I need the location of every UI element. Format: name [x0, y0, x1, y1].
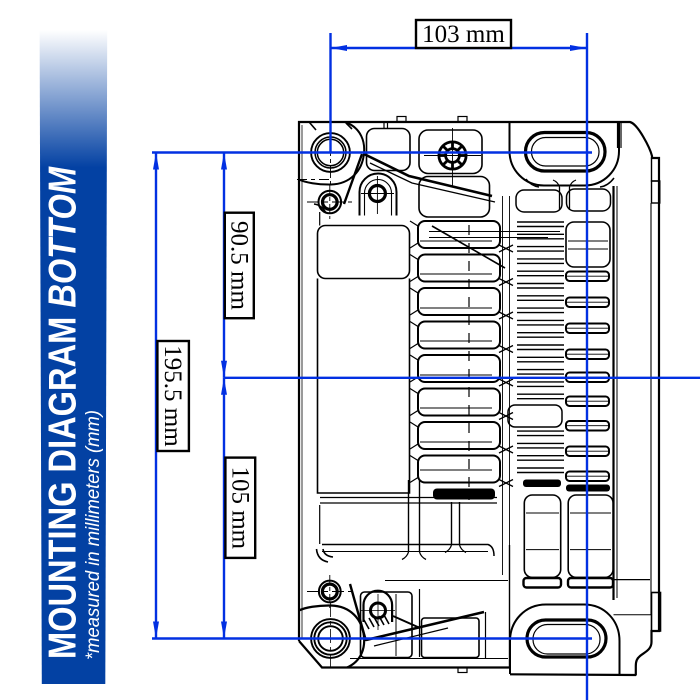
svg-text:105 mm: 105 mm [226, 466, 253, 549]
svg-text:90.5 mm: 90.5 mm [225, 221, 252, 310]
svg-text:*measured in millimeters (mm): *measured in millimeters (mm) [83, 410, 104, 660]
svg-text:MOUNTING DIAGRAM BOTTOM: MOUNTING DIAGRAM BOTTOM [42, 166, 85, 659]
svg-text:195.5 mm: 195.5 mm [159, 345, 186, 447]
svg-text:103 mm: 103 mm [422, 21, 505, 48]
